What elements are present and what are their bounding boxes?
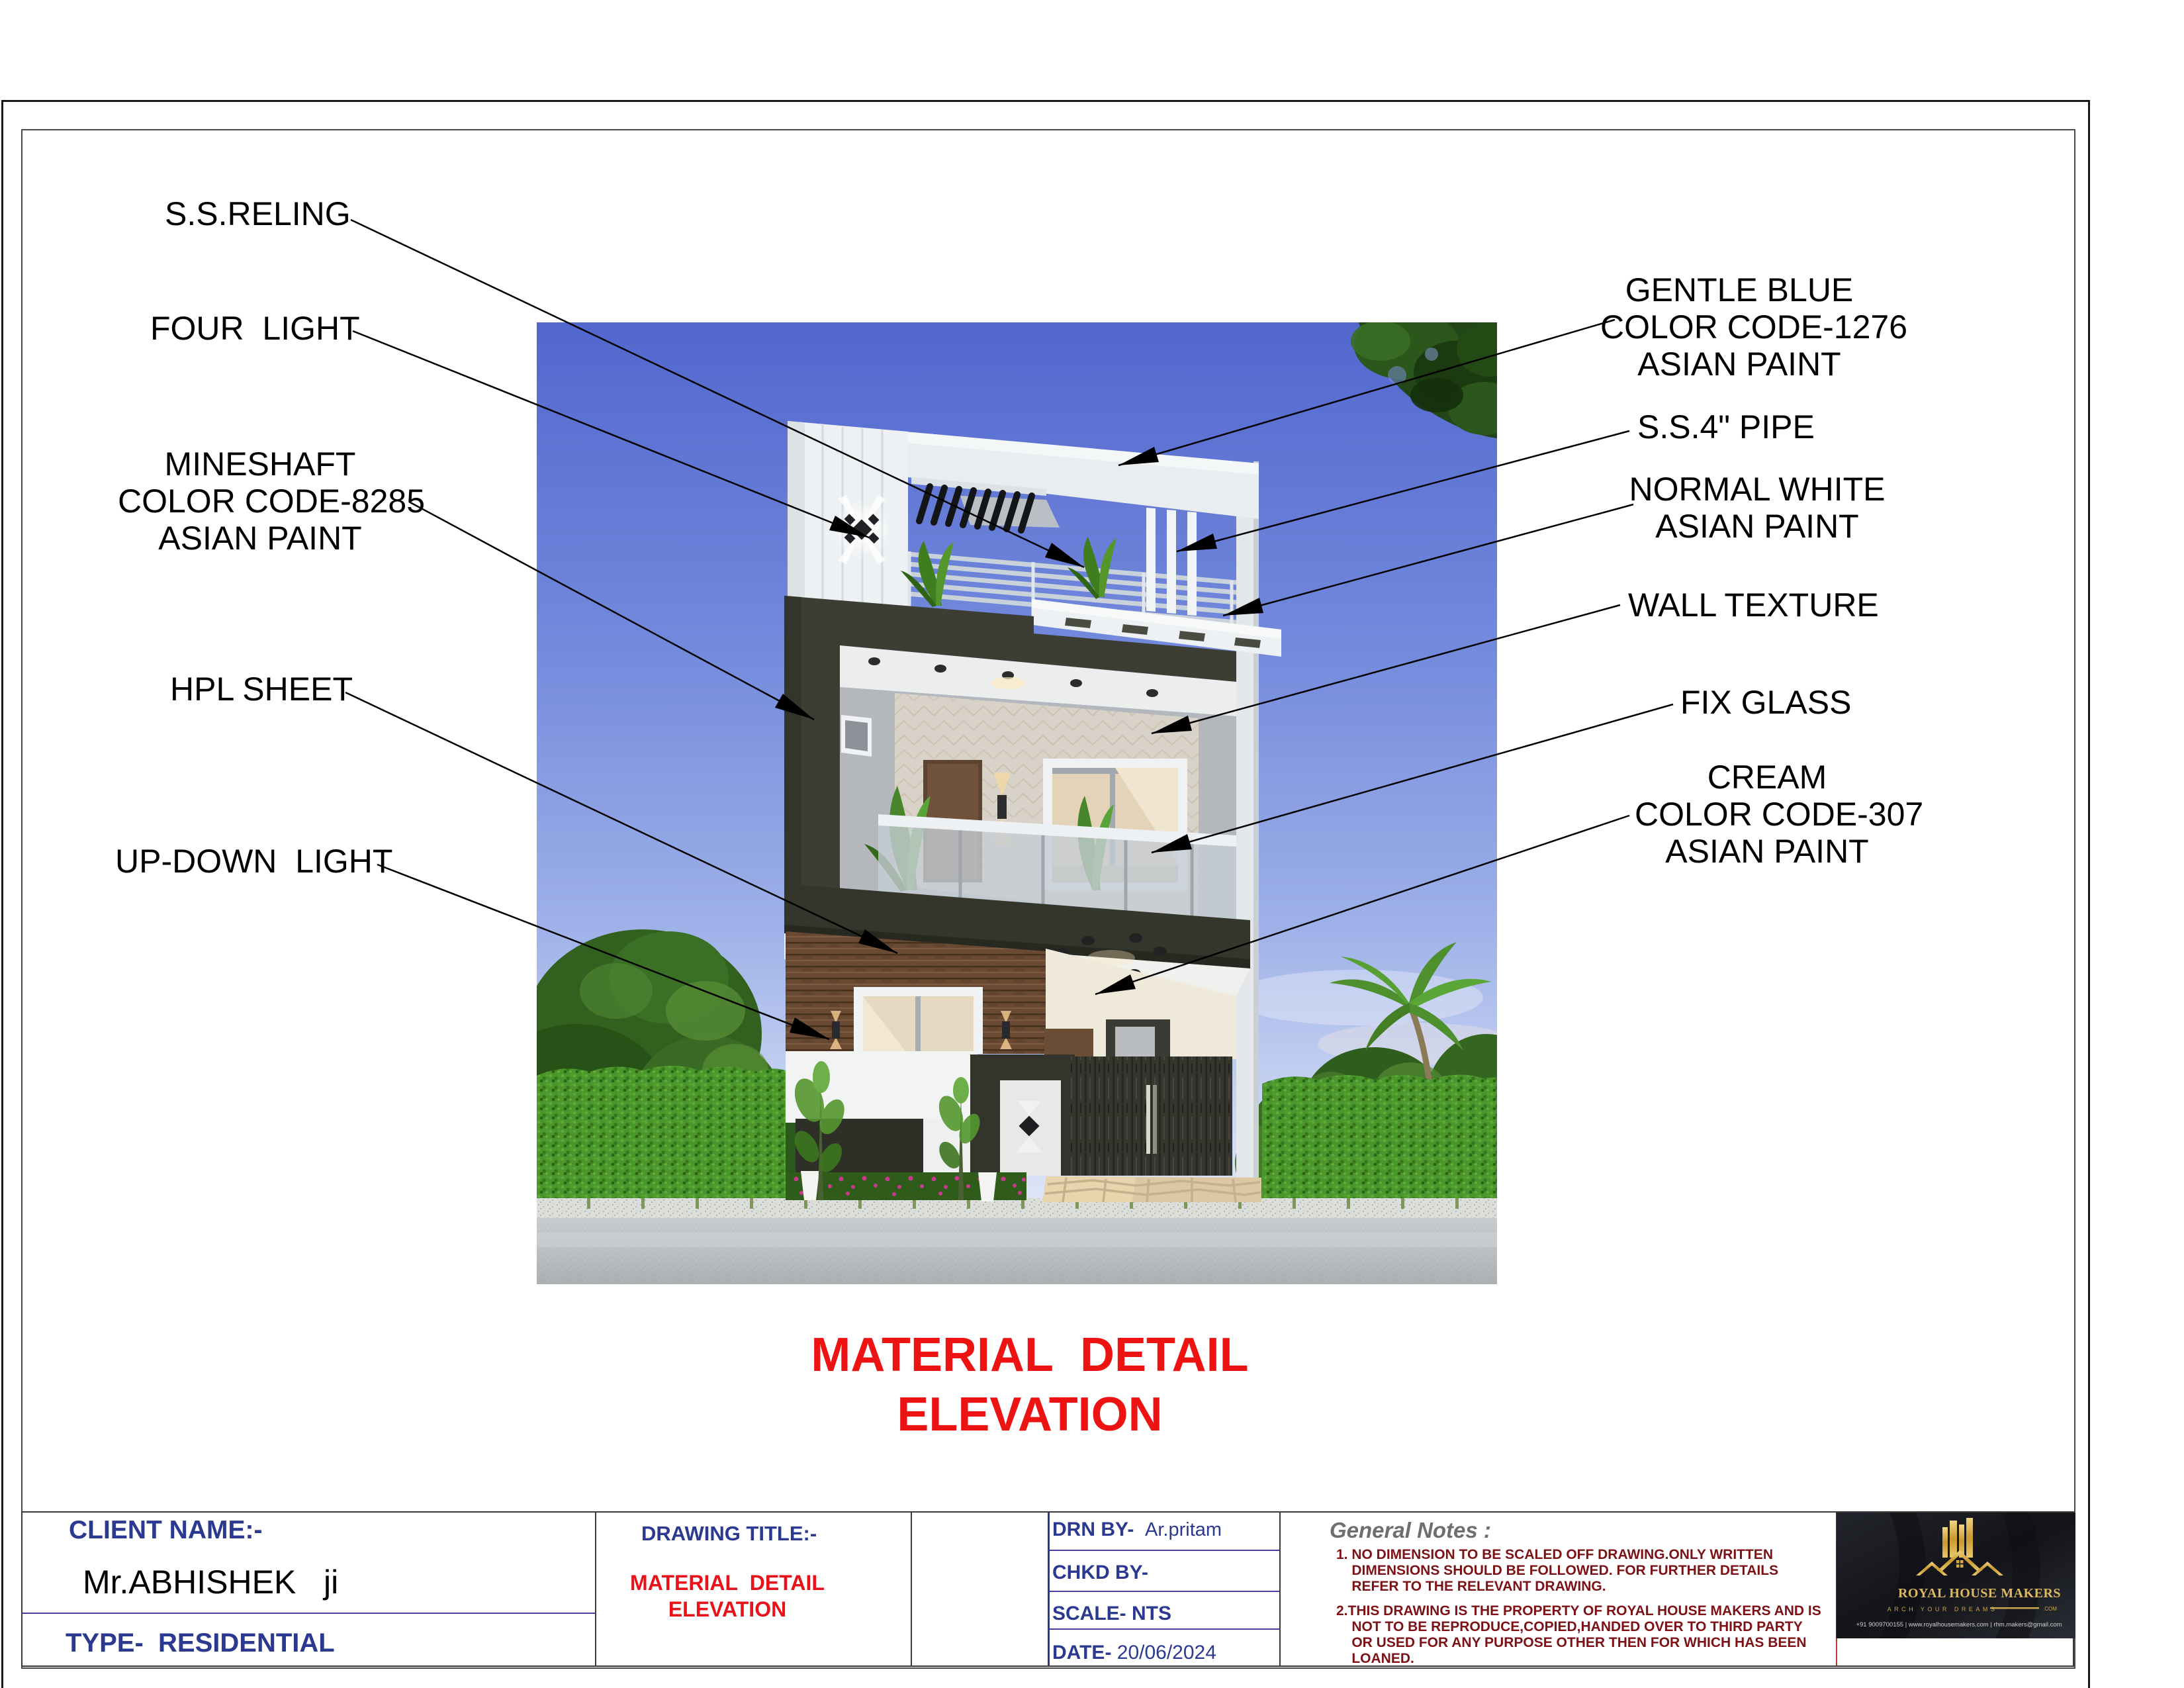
svg-text:+91 9009700155 | www.royalhous: +91 9009700155 | www.royalhousemakers.co… bbox=[1856, 1621, 2062, 1628]
svg-text:.COM: .COM bbox=[2043, 1606, 2057, 1612]
svg-text:ROYAL HOUSE MAKERS: ROYAL HOUSE MAKERS bbox=[1898, 1586, 2061, 1601]
svg-text:ARCH YOUR DREAMS: ARCH YOUR DREAMS bbox=[1888, 1606, 1998, 1613]
